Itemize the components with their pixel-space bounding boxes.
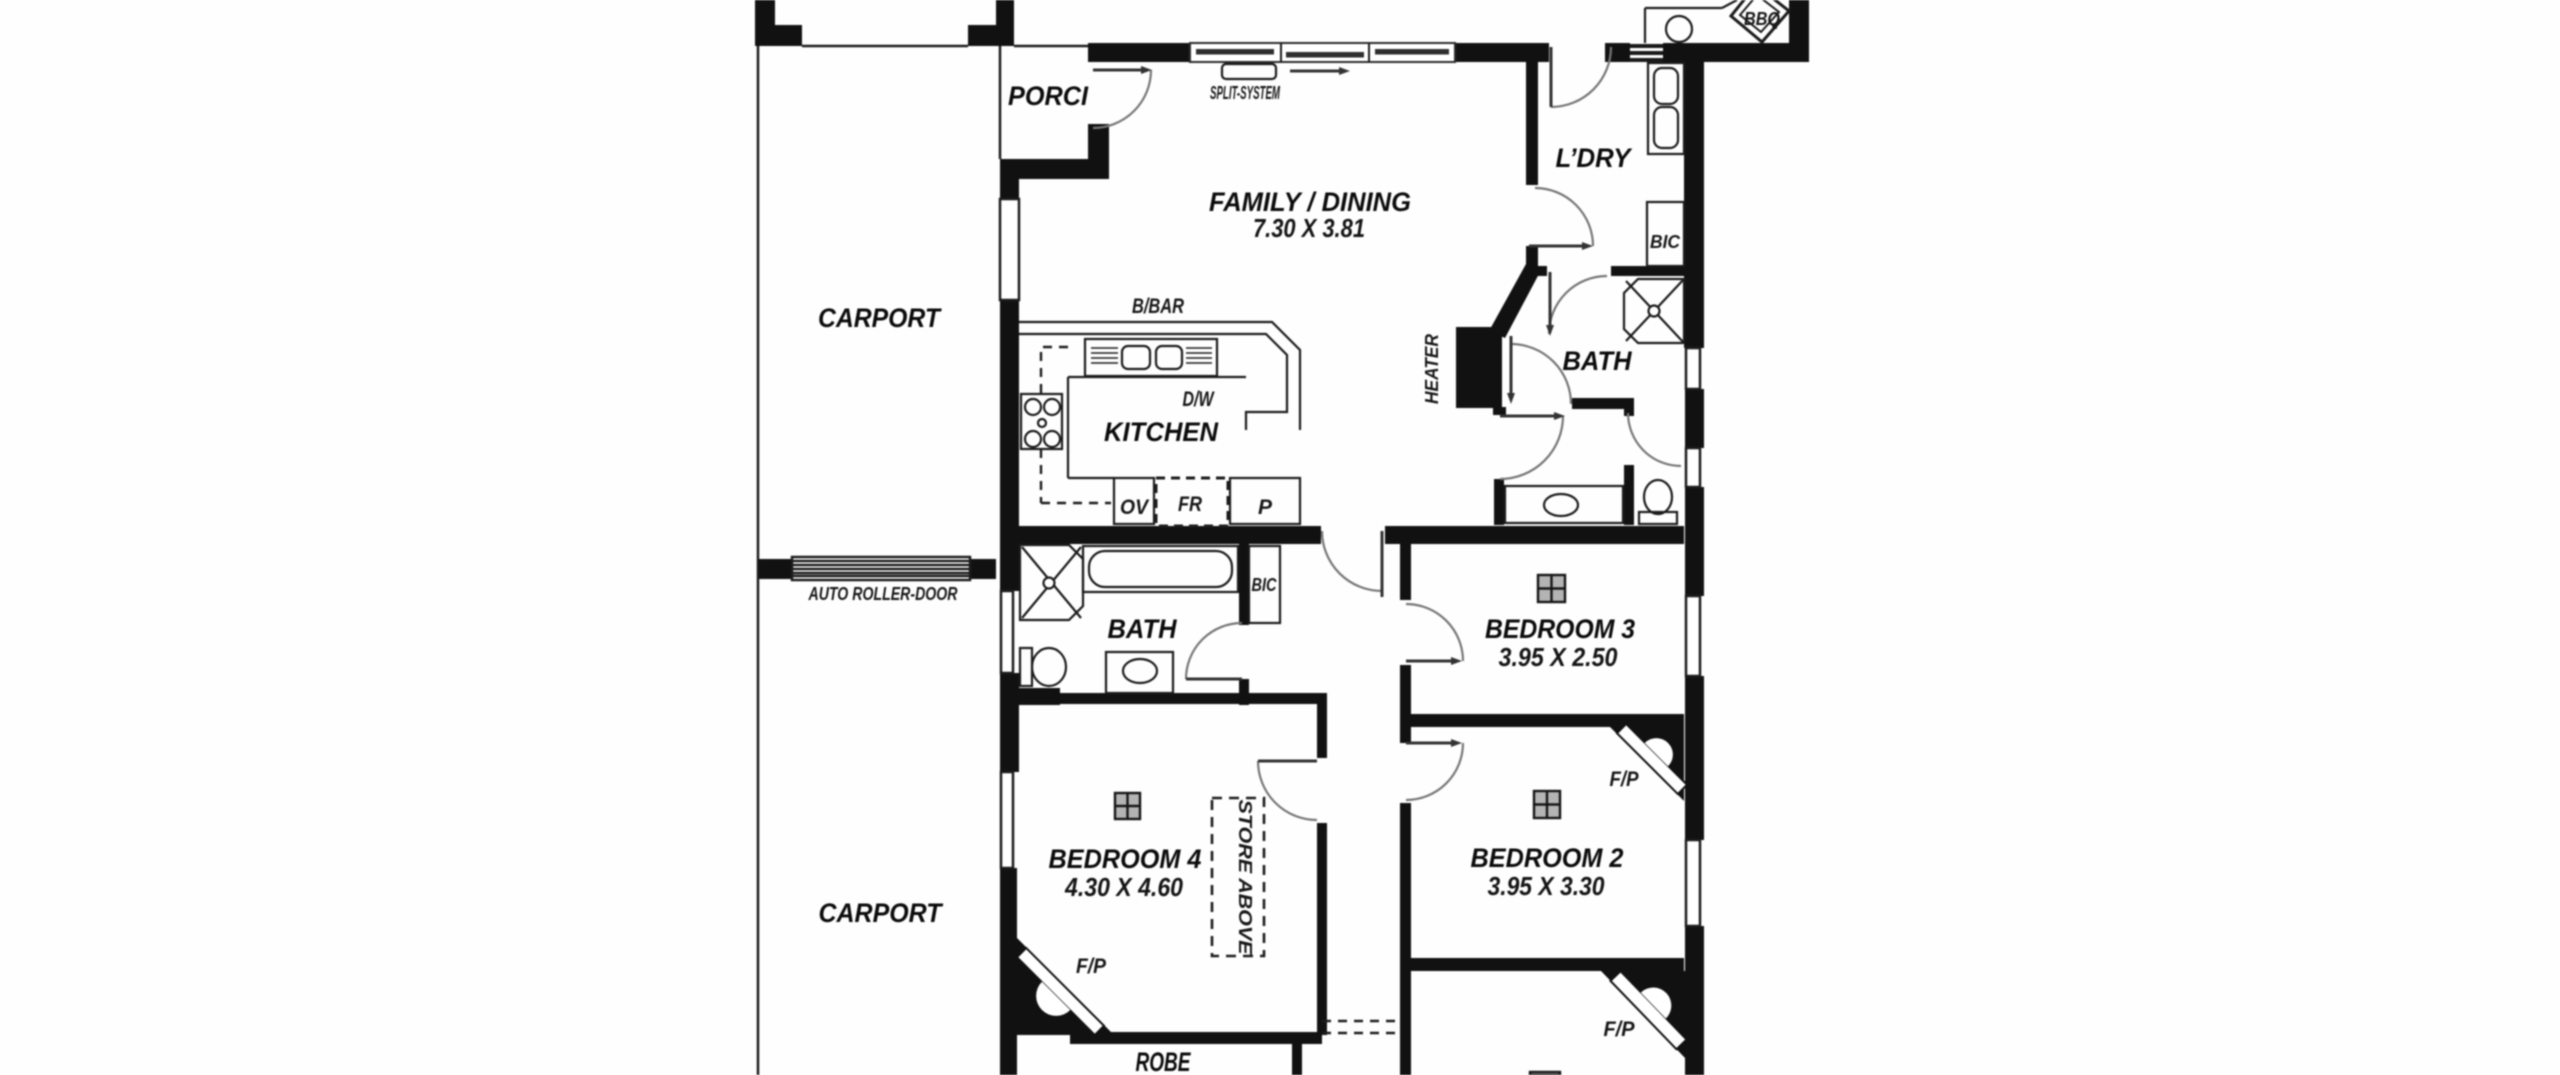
svg-text:F/P: F/P	[1604, 1018, 1636, 1041]
svg-text:AUTO ROLLER-DOOR: AUTO ROLLER-DOOR	[808, 584, 958, 604]
svg-text:CARPORT: CARPORT	[818, 303, 942, 333]
svg-text:KITCHEN: KITCHEN	[1104, 417, 1218, 447]
svg-text:3.95 X 3.30: 3.95 X 3.30	[1488, 871, 1605, 901]
svg-text:HEATER: HEATER	[1422, 334, 1442, 404]
svg-text:PORCI: PORCI	[1008, 81, 1088, 111]
svg-text:B/BAR: B/BAR	[1132, 295, 1185, 318]
svg-text:BBQ: BBQ	[1744, 9, 1780, 29]
svg-text:4.30 X 4.60: 4.30 X 4.60	[1064, 872, 1183, 902]
svg-text:BEDROOM 4: BEDROOM 4	[1049, 844, 1202, 874]
svg-text:BIC: BIC	[1650, 232, 1681, 252]
svg-text:D/W: D/W	[1183, 388, 1216, 411]
svg-text:7.30 X 3.81: 7.30 X 3.81	[1253, 213, 1365, 243]
svg-text:F/P: F/P	[1076, 955, 1107, 978]
svg-text:SPLIT-SYSTEM: SPLIT-SYSTEM	[1210, 83, 1281, 103]
svg-text:BATH: BATH	[1108, 614, 1177, 644]
svg-text:BEDROOM 3: BEDROOM 3	[1485, 614, 1635, 644]
svg-text:3.95 X 2.50: 3.95 X 2.50	[1499, 642, 1618, 672]
svg-text:BIC: BIC	[1252, 575, 1278, 595]
svg-text:P: P	[1258, 496, 1273, 519]
svg-text:FR: FR	[1178, 493, 1203, 516]
svg-text:CARPORT: CARPORT	[819, 898, 944, 928]
svg-text:BEDROOM 2: BEDROOM 2	[1471, 843, 1624, 873]
svg-text:BATH: BATH	[1563, 346, 1632, 376]
svg-text:ROBE: ROBE	[1136, 1047, 1192, 1075]
svg-text:STORE ABOVE: STORE ABOVE	[1235, 800, 1255, 956]
svg-text:F/P: F/P	[1610, 768, 1640, 791]
svg-text:L’DRY: L’DRY	[1556, 143, 1634, 173]
svg-text:OV: OV	[1120, 496, 1150, 519]
